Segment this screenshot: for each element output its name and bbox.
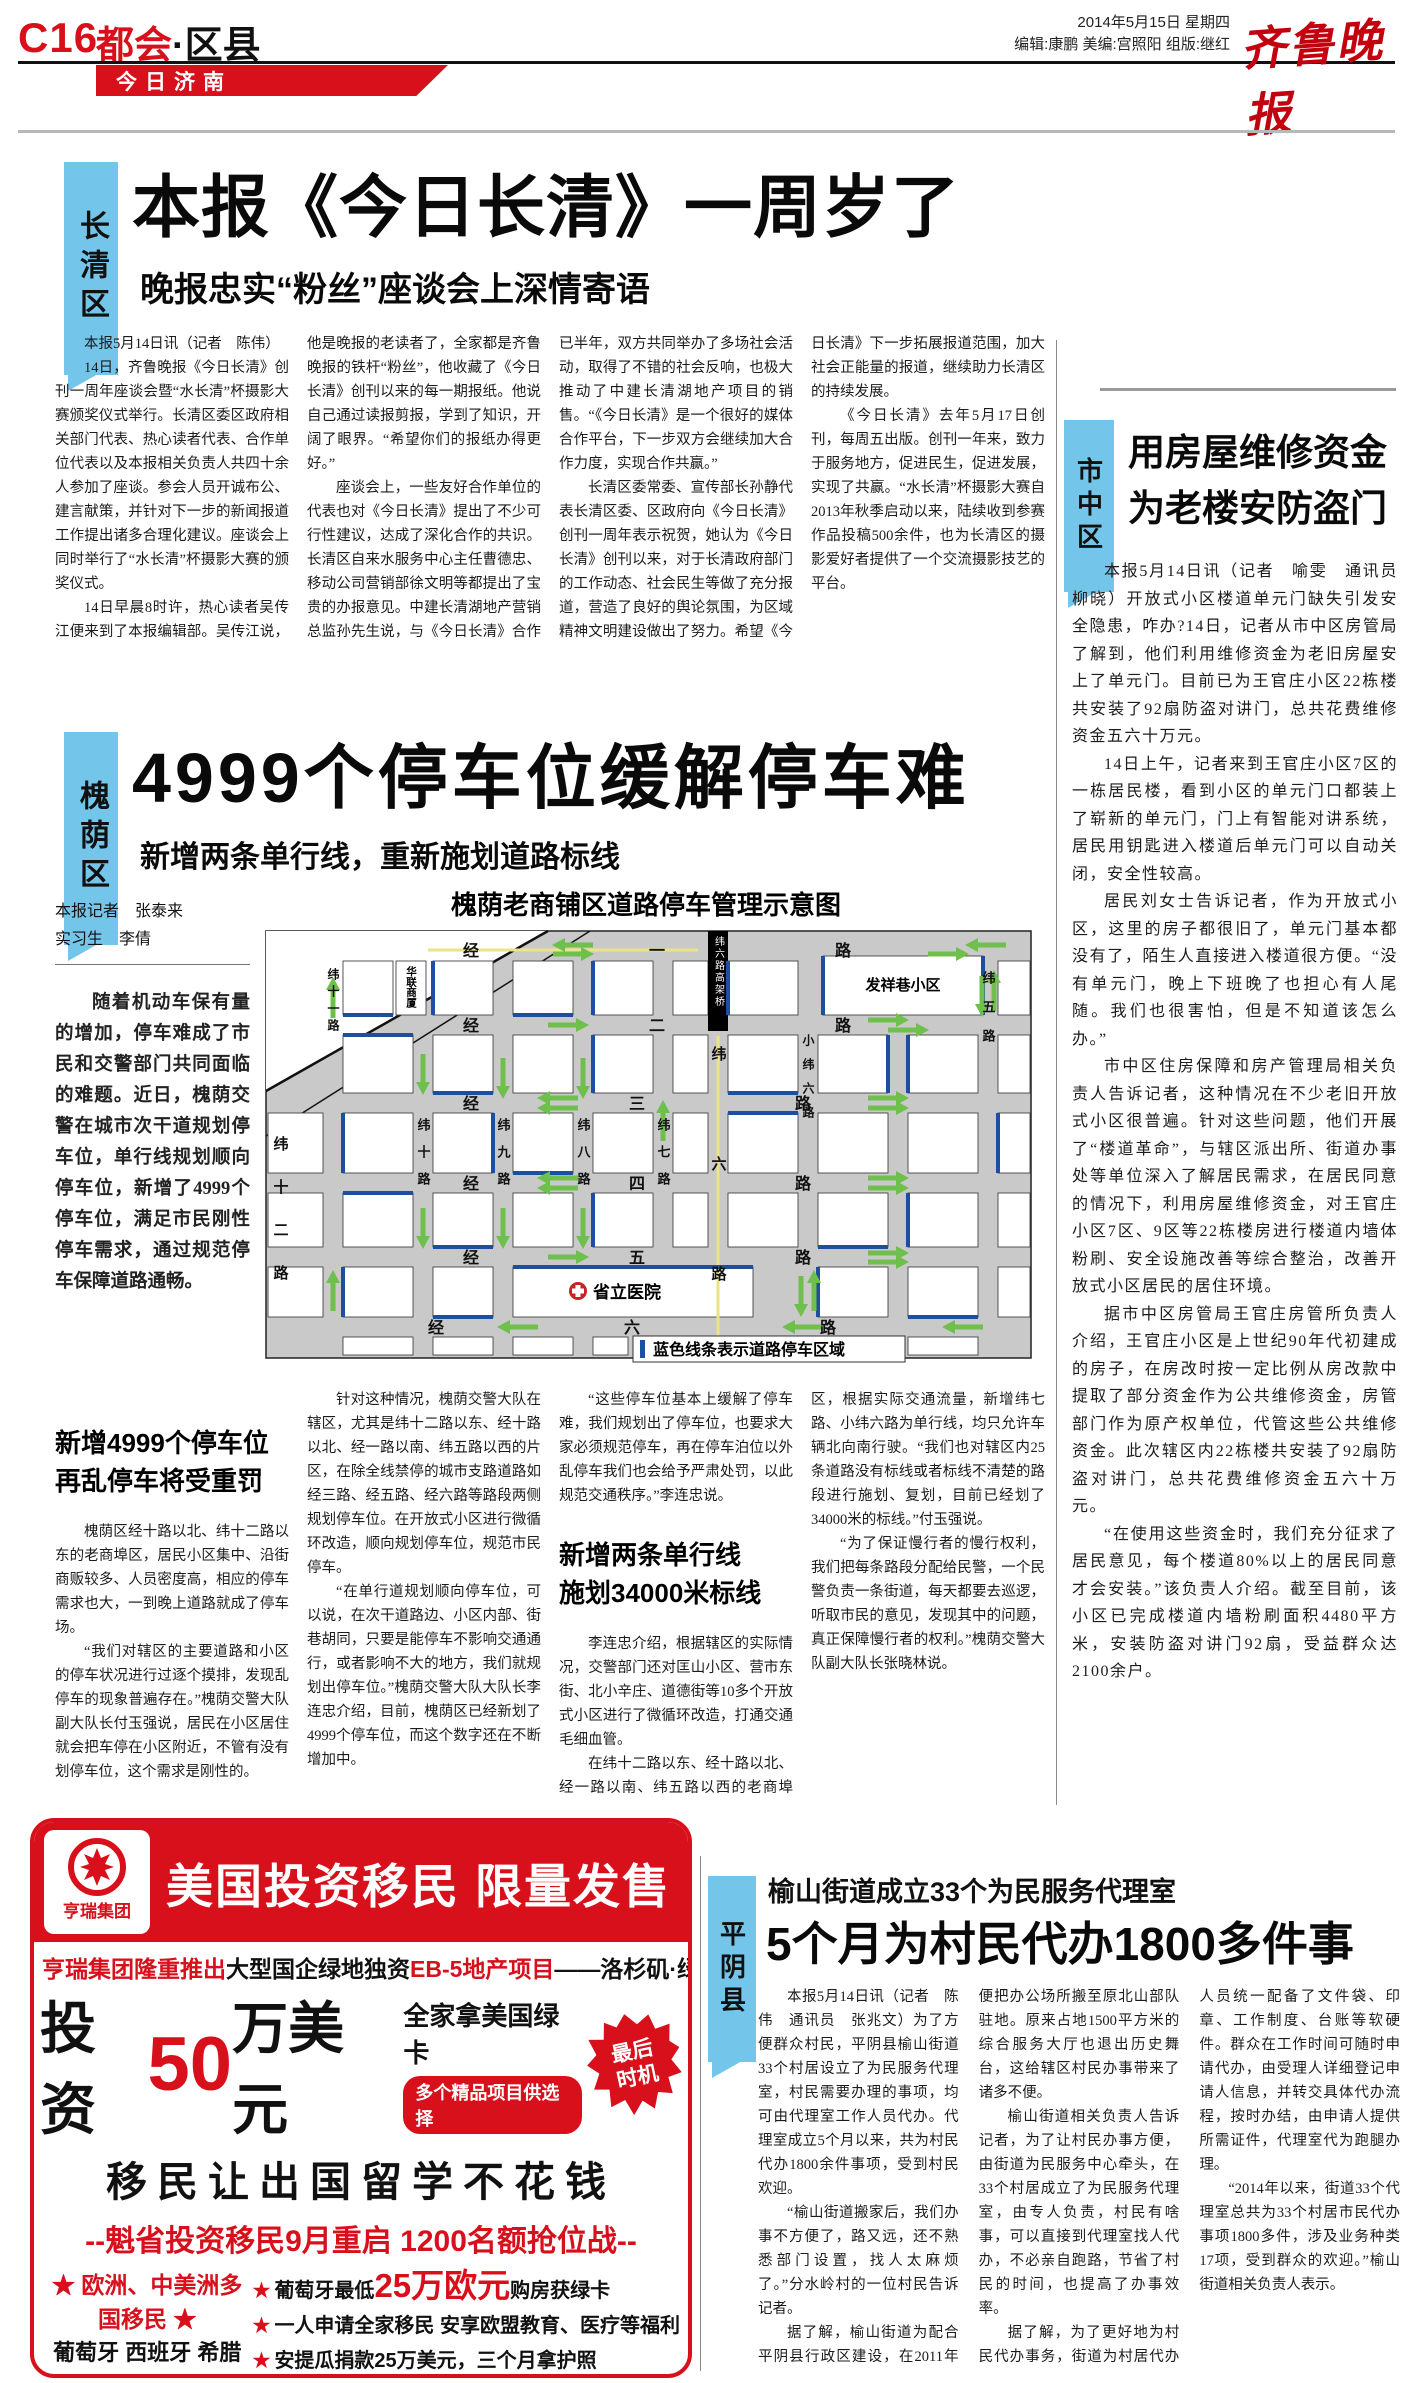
changqing-subhead: 晚报忠实“粉丝”座谈会上深情寄语 bbox=[140, 262, 650, 311]
road-label: 纬十一路 bbox=[326, 967, 340, 1036]
huaiyin-byline: 本报记者 张泰来 实习生 李倩 bbox=[55, 898, 250, 965]
paragraph: 据市中区房管局王官庄房管所负责人介绍，王官庄小区是上世纪90年代初建成的房子，在… bbox=[1072, 1301, 1398, 1521]
pingyin-headline: 5个月为村民代办1800多件事 bbox=[766, 1908, 1354, 1974]
map-legend: 蓝色线条表示道路停车区域 bbox=[653, 1340, 845, 1359]
road-label: 纬十路 bbox=[416, 1117, 431, 1199]
ad-offers: ★葡萄牙最低25万欧元购房获绿卡 ★一人申请全家移民 安享欧盟教育、医疗等福利 … bbox=[253, 2268, 681, 2378]
region-label-text: 长清区 bbox=[69, 210, 113, 327]
newspaper-page: C16 都会·区县 今日济南 2014年5月15日 星期四 编辑:康鹏 美编:宫… bbox=[0, 0, 1409, 2383]
region-label-pingyin: 平阴县 bbox=[708, 1876, 756, 2062]
road-label: 经一路 bbox=[463, 941, 1021, 960]
shizhong-title-line1: 用房屋维修资金 bbox=[1128, 425, 1387, 481]
paragraph: “在单行道规划顺向停车位，可以说，在次干道路边、小区内部、街巷胡同，只要是能停车… bbox=[307, 1580, 541, 1772]
last-chance-burst: 最后时机 bbox=[578, 2004, 692, 2125]
shizhong-body: 本报5月14日讯（记者 喻雯 通讯员 柳晓）开放式小区楼道单元门缺失引发安全隐患… bbox=[1072, 558, 1398, 1806]
bottom-divider bbox=[700, 1856, 701, 2371]
byline-intern: 实习生 李倩 bbox=[55, 926, 250, 954]
road-label: 纬八路 bbox=[576, 1117, 592, 1199]
changqing-body: 本报5月14日讯（记者 陈伟） 14日，齐鲁晚报《今日长清》创刊一周年座谈会暨“… bbox=[55, 332, 1045, 665]
paragraph: 本报5月14日讯（记者 喻雯 通讯员 柳晓）开放式小区楼道单元门缺失引发安全隐患… bbox=[1072, 558, 1398, 751]
ad-project-line: 亨瑞集团隆重推出大型国企绿地独资EB-5地产项目——洛杉矶·绿地中心 bbox=[34, 1942, 688, 1984]
header-rule bbox=[18, 61, 1395, 64]
pingyin-body: 本报5月14日讯（记者 陈伟 通讯员 张兆文）为了方便群众村民，平阴县榆山街道3… bbox=[758, 1985, 1400, 2377]
ad-brand-name: 亨瑞集团 bbox=[44, 1903, 150, 1921]
date-text: 2014年5月15日 星期四 bbox=[930, 12, 1230, 34]
landmark-mall: 华联商厦 bbox=[405, 965, 417, 1009]
parking-map: 槐荫老商铺区道路停车管理示意图 bbox=[248, 886, 1045, 1368]
projects-pill: 多个精品项目供选择 bbox=[403, 2076, 582, 2134]
paragraph: “我们对辖区的主要道路和小区的停车状况进行过逐个摸排，发现乱停车的现象普遍存在。… bbox=[55, 1640, 289, 1784]
ad-countries: ★ 欧洲、中美洲多国移民 ★ 葡萄牙 西班牙 希腊 英国 匈牙利 塞浦路斯等 bbox=[42, 2268, 253, 2378]
paragraph: 14日上午，记者来到王官庄小区7区的一栋居民楼，看到小区的单元门口都装上了崭新的… bbox=[1072, 751, 1398, 889]
greencard-text: 全家拿美国绿卡 bbox=[403, 1996, 582, 2070]
header-banner: 今日济南 bbox=[96, 65, 448, 96]
ad-invest-row: 投资 50 万美元 全家拿美国绿卡 多个精品项目供选择 最后时机 bbox=[34, 1984, 688, 2146]
road-label: 纬九路 bbox=[496, 1117, 512, 1199]
landmark-community: 发祥巷小区 bbox=[864, 976, 940, 994]
paragraph: “为了保证慢行者的慢行权利，我们把每条路段分配给民警，一个民警负责一条街道，每天… bbox=[811, 1532, 1045, 1676]
huaiyin-body: 新增4999个停车位 再乱停车将受重罚 槐荫区经十路以北、纬十二路以东的老商埠区… bbox=[55, 1388, 1045, 1808]
region-label-text: 槐荫区 bbox=[69, 780, 113, 897]
paragraph: “这些停车位基本上缓解了停车难，我们规划出了停车位，也要求大家必须规范停车，再在… bbox=[559, 1388, 793, 1508]
huaiyin-subhead: 新增两条单行线，重新施划道路标线 bbox=[140, 832, 620, 876]
paragraph: 《今日长清》去年5月17日创刊，每周五出版。创刊一年来，致力于服务地方，促进民生… bbox=[811, 404, 1045, 596]
legend-swatch bbox=[640, 1340, 645, 1358]
star-icon: ★ bbox=[253, 2350, 271, 2372]
masthead-logo: 齐鲁晚报 bbox=[1238, 2, 1409, 145]
paragraph: “在使用这些资金时，我们充分征求了居民意见，每个楼道80%以上的居民同意才会安装… bbox=[1072, 1521, 1398, 1686]
map-title: 槐荫老商铺区道路停车管理示意图 bbox=[451, 890, 841, 920]
maple-globe-icon bbox=[64, 1836, 130, 1898]
paragraph: 市中区住房保障和房产管理局相关负责人告诉记者，这种情况在不少老旧开放式小区很普遍… bbox=[1072, 1053, 1398, 1301]
road-label: 经二路 bbox=[463, 1016, 1021, 1035]
ad-logo: 亨瑞集团 bbox=[44, 1830, 150, 1934]
countries-line1: 葡萄牙 西班牙 希腊 bbox=[42, 2336, 253, 2370]
ad-slogan: 移民让出国留学不花钱 bbox=[34, 2148, 688, 2208]
paragraph: 本报5月14日讯（记者 陈伟 通讯员 张兆文）为了方便群众村民，平阴县榆山街道3… bbox=[758, 1985, 959, 2201]
huaiyin-crosshead-2: 新增两条单行线 施划34000米标线 bbox=[559, 1536, 793, 1612]
offer-portugal: ★葡萄牙最低25万欧元购房获绿卡 bbox=[253, 2268, 681, 2309]
pingyin-kicker: 榆山街道成立33个为民服务代理室 bbox=[768, 1870, 1176, 1909]
offer-antigua: ★安提瓜捐款25万美元，三个月拿护照 bbox=[253, 2344, 681, 2378]
countries-line2: 英国 匈牙利 塞浦路斯等 bbox=[42, 2370, 253, 2378]
invest-pre: 投资 bbox=[40, 1984, 148, 2146]
road-label: 纬六路 bbox=[710, 1045, 727, 1368]
header-dateline: 2014年5月15日 星期四 编辑:康鹏 美编:宫照阳 组版:继红 bbox=[930, 12, 1230, 56]
immigration-ad: 亨瑞集团 美国投资移民 限量发售 亨瑞集团隆重推出大型国企绿地独资EB-5地产项… bbox=[30, 1818, 692, 2378]
top-gray-rule bbox=[18, 130, 1395, 133]
paragraph: “2014年以来，街道33个代理室总共为33个村居市民代办事项1800多件，涉及… bbox=[1199, 2177, 1400, 2297]
ad-greencard-col: 全家拿美国绿卡 多个精品项目供选择 bbox=[403, 1996, 582, 2134]
paragraph: 14日，齐鲁晚报《今日长清》创刊一周年座谈会暨“水长清”杯摄影大赛颁奖仪式举行。… bbox=[55, 356, 289, 596]
shizhong-title-line2: 为老楼安防盗门 bbox=[1128, 481, 1387, 537]
paragraph: “榆山街道搬家后，我们办事不方便了，路又远，还不熟悉部门设置，找人太麻烦了。”分… bbox=[758, 2201, 959, 2321]
byline-reporter: 本报记者 张泰来 bbox=[55, 898, 250, 926]
star-icon: ★ bbox=[253, 2315, 271, 2337]
staff-text: 编辑:康鹏 美编:宫照阳 组版:继红 bbox=[930, 34, 1230, 56]
invest-amount: 50 bbox=[148, 2025, 233, 2105]
ad-top-banner: 亨瑞集团 美国投资移民 限量发售 bbox=[34, 1822, 688, 1942]
changqing-headline: 本报《今日长清》一周岁了 bbox=[132, 152, 960, 251]
rail-divider bbox=[1056, 340, 1057, 1805]
paragraph: 居民刘女士告诉记者，作为开放式小区，这里的房子都很旧了，单元门基本都没有了，陌生… bbox=[1072, 888, 1398, 1053]
huaiyin-headline: 4999个停车位缓解停车难 bbox=[132, 722, 970, 823]
star-icon: ★ bbox=[253, 2280, 271, 2302]
road-label: 纬十二路 bbox=[272, 1135, 289, 1308]
europe-title: ★ 欧洲、中美洲多国移民 ★ bbox=[42, 2268, 253, 2336]
paragraph: 针对这种情况，槐荫交警大队在辖区，尤其是纬十二路以东、经十路以北、经一路以南、纬… bbox=[307, 1388, 541, 1580]
region-label-text: 平阴县 bbox=[714, 1920, 751, 2019]
paragraph: 李连忠介绍，根据辖区的实际情况，交警部门还对匡山小区、营市东街、北小辛庄、道德街… bbox=[559, 1632, 793, 1752]
road-label: 纬五路 bbox=[981, 970, 996, 1058]
invest-post: 万美元 bbox=[232, 1984, 393, 2146]
region-label-text: 市中区 bbox=[1071, 457, 1108, 556]
ad-quebec-line: --魁省投资移民9月重启 1200名额抢位战-- bbox=[34, 2216, 688, 2260]
huaiyin-lede: 随着机动车保有量的增加，停车难成了市民和交警部门共同面临的难题。近日，槐荫交警在… bbox=[55, 988, 250, 1298]
shizhong-title: 用房屋维修资金 为老楼安防盗门 bbox=[1128, 425, 1387, 537]
road-label: 小纬六路 bbox=[801, 1033, 815, 1130]
ad-bullets: ★ 欧洲、中美洲多国移民 ★ 葡萄牙 西班牙 希腊 英国 匈牙利 塞浦路斯等 ★… bbox=[34, 2260, 688, 2378]
paragraph: 榆山街道相关负责人告诉记者，为了让村民办事方便，由街道为民服务中心牵头，在33个… bbox=[979, 2105, 1180, 2321]
road-label: 纬七路 bbox=[656, 1117, 671, 1199]
paragraph: 本报5月14日讯（记者 陈伟） bbox=[55, 332, 289, 356]
ad-headline: 美国投资移民 限量发售 bbox=[166, 1822, 671, 1942]
huaiyin-crosshead-1: 新增4999个停车位 再乱停车将受重罚 bbox=[55, 1424, 289, 1500]
offer-family: ★一人申请全家移民 安享欧盟教育、医疗等福利 bbox=[253, 2309, 681, 2344]
landmark-hospital: 省立医院 bbox=[592, 1282, 661, 1302]
page-code: C16 bbox=[18, 14, 98, 62]
paragraph: 槐荫区经十路以北、纬十二路以东的老商埠区，居民小区集中、沿街商贩较多、人员密度高… bbox=[55, 1520, 289, 1640]
shizhong-top-rule bbox=[1100, 388, 1396, 391]
